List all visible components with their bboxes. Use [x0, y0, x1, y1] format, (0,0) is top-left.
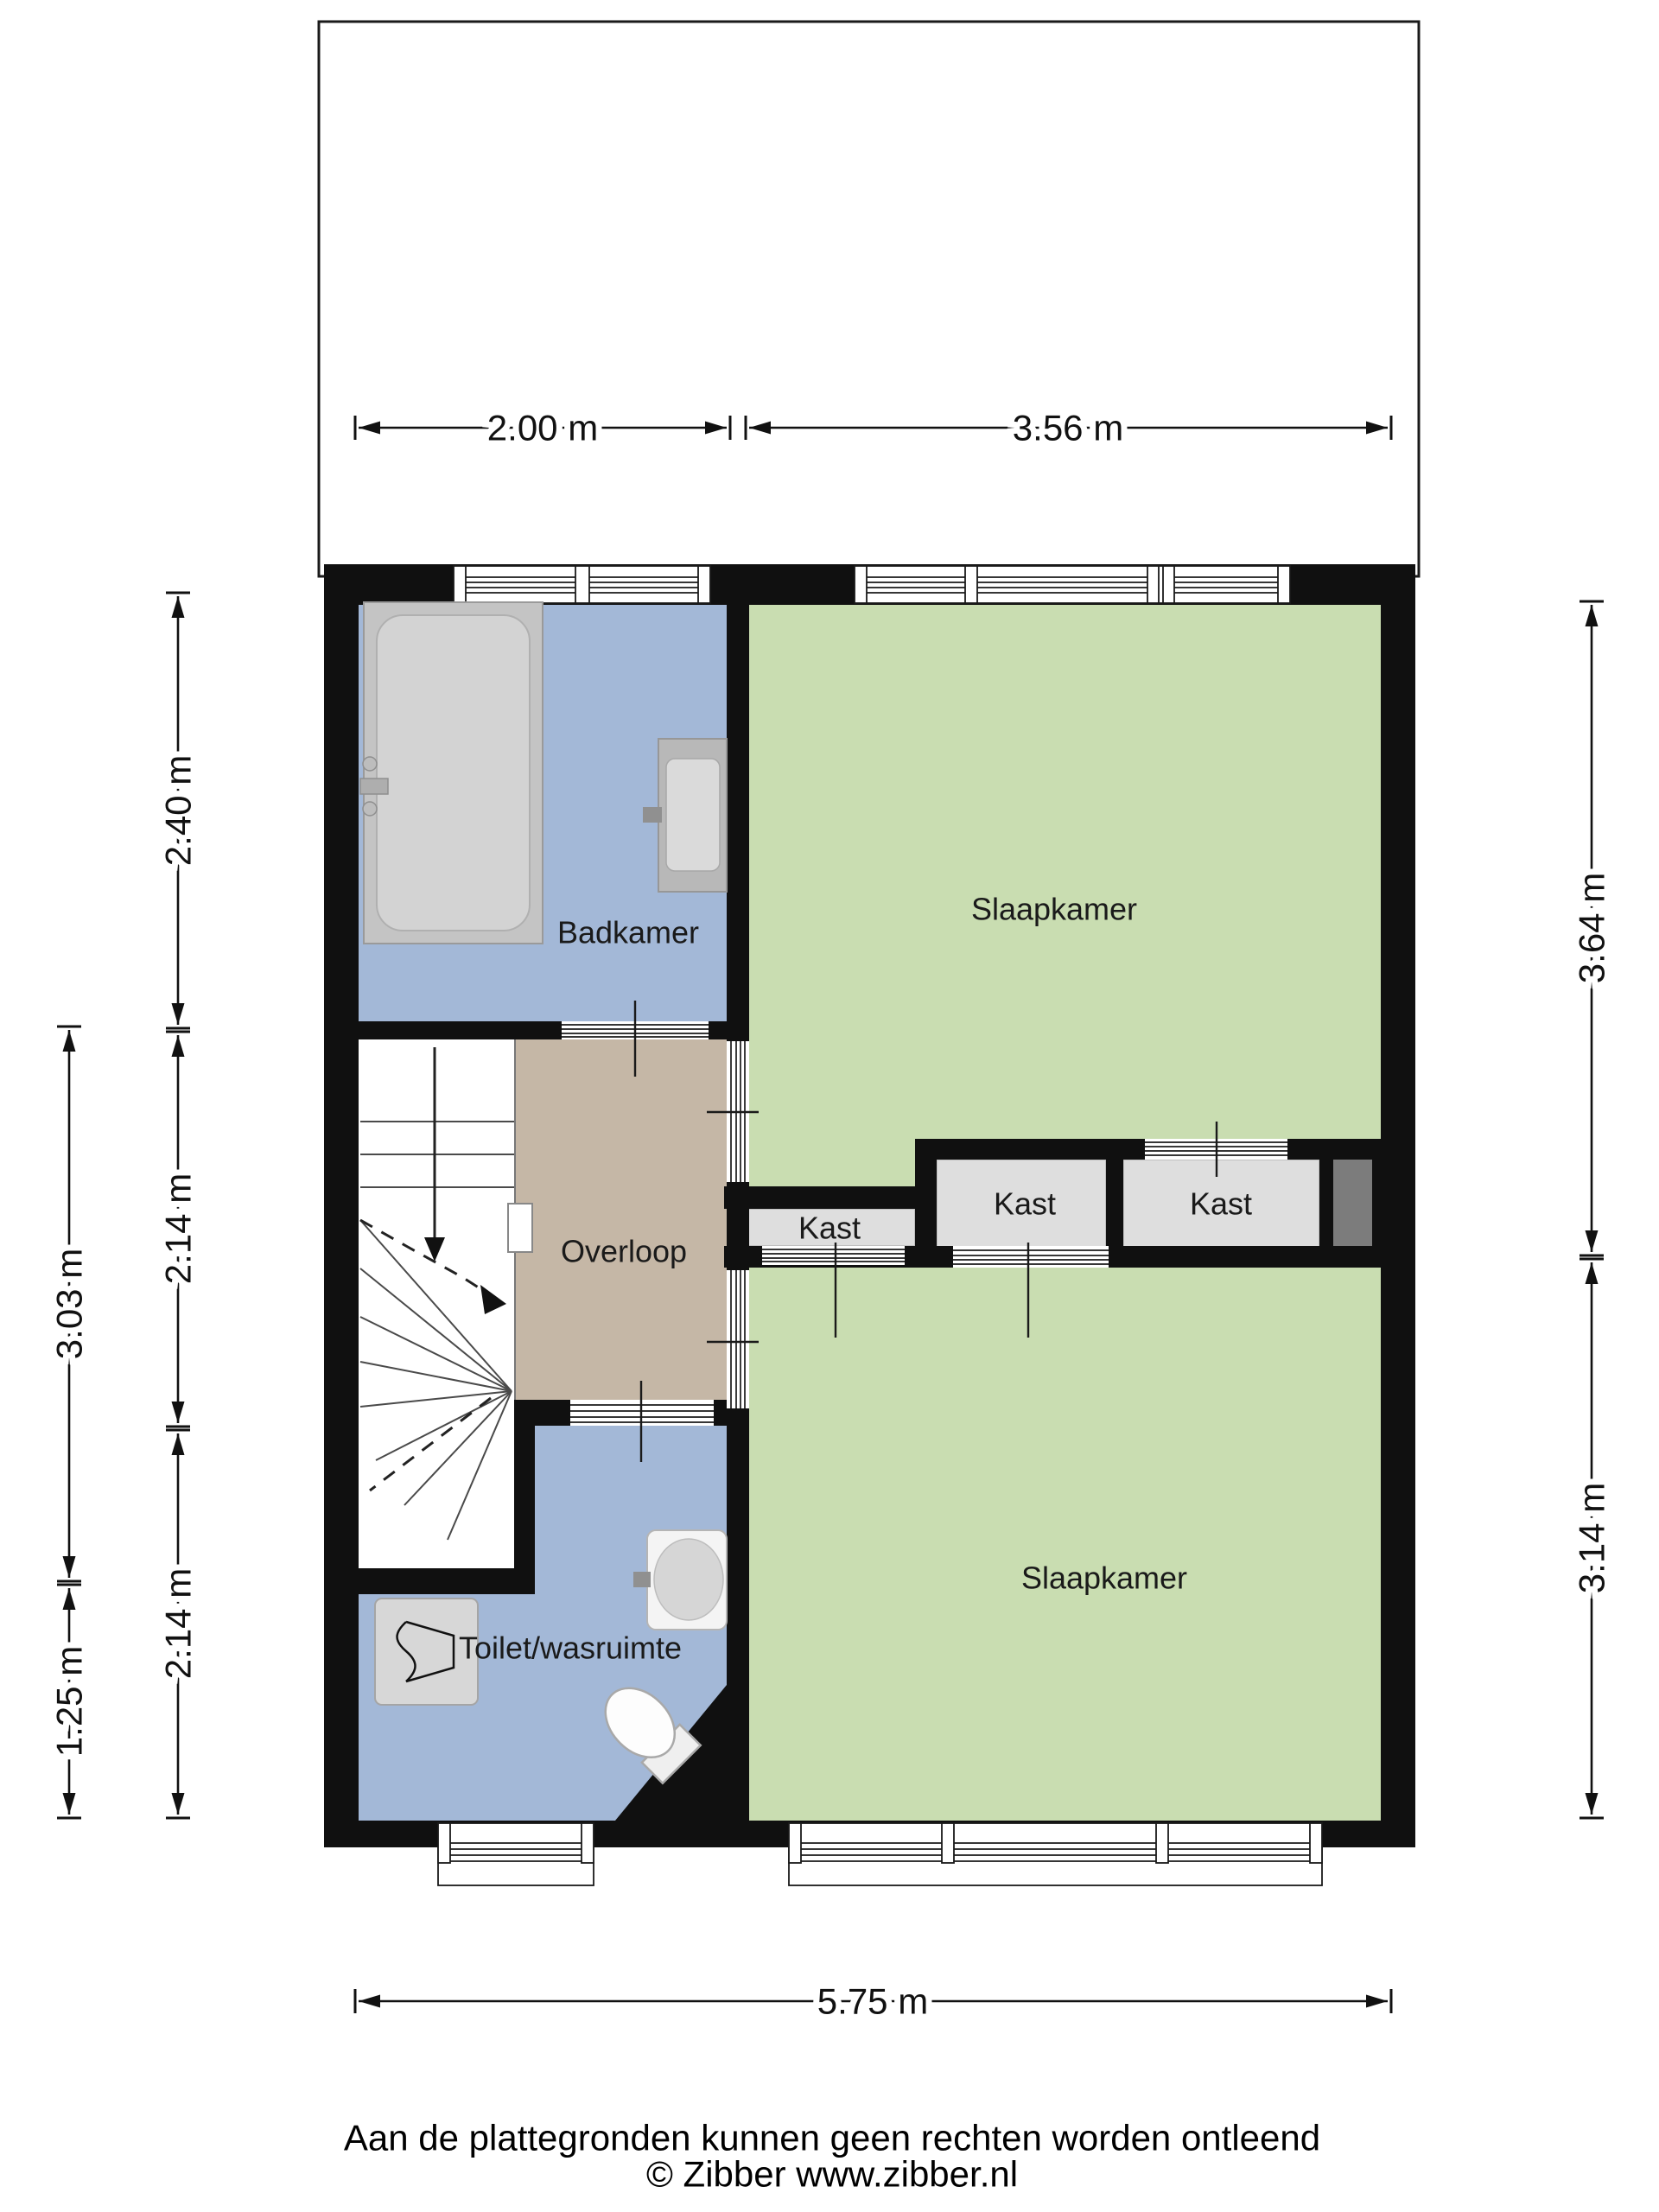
- label-kast-rechts: Kast: [1190, 1186, 1252, 1222]
- closet-niche: [1333, 1160, 1372, 1247]
- dimension-left-overloop: 2.14 m: [158, 1035, 199, 1423]
- label-slaapkamer-boven: Slaapkamer: [971, 892, 1137, 927]
- svg-text:3.03 m: 3.03 m: [49, 1249, 90, 1359]
- room-slaapkamer-boven-floor: [749, 605, 1381, 1139]
- wall-divider: [727, 605, 749, 1821]
- garden-outline: [319, 22, 1419, 576]
- wall-stairs-right: [514, 1400, 535, 1594]
- svg-text:2.14 m: 2.14 m: [158, 1568, 199, 1679]
- dimension-label: 2.00 m: [487, 408, 598, 448]
- sink-tap: [643, 807, 662, 823]
- label-badkamer: Badkamer: [557, 915, 699, 950]
- svg-text:3.14 m: 3.14 m: [1572, 1483, 1612, 1593]
- dimension-left-badkamer: 2.40 m: [158, 596, 199, 1025]
- label-overloop: Overloop: [561, 1234, 687, 1269]
- room-slaapkamer-beneden-floor: [749, 1268, 1381, 1821]
- room-slaapkamer-boven-notch: [749, 1139, 919, 1186]
- toilet-sink: [633, 1530, 727, 1630]
- wall-stairs-bottom: [359, 1568, 535, 1594]
- dimension-left-onder: 1.25 m: [49, 1588, 90, 1815]
- dimension-bottom-total: 5.75 m: [359, 1981, 1388, 2022]
- bathtub-faucet: [360, 779, 388, 794]
- dimension-right-slaapkamer-boven: 3.64 m: [1572, 605, 1612, 1252]
- footer-disclaimer: Aan de plattegronden kunnen geen rechten…: [344, 2118, 1320, 2158]
- label-toilet-wasruimte: Toilet/wasruimte: [459, 1630, 682, 1666]
- dimension-label: 3.56 m: [1013, 408, 1123, 448]
- room-overloop-floor: [516, 1039, 727, 1400]
- window-badkamer: [454, 566, 710, 603]
- svg-text:2.14 m: 2.14 m: [158, 1173, 199, 1284]
- window-toilet: [438, 1823, 594, 1885]
- sink-tap: [633, 1572, 651, 1587]
- dimension-left-stairwell: 3.03 m: [49, 1030, 90, 1578]
- dimension-left-toilet: 2.14 m: [158, 1433, 199, 1815]
- label-kast-klein: Kast: [798, 1211, 861, 1246]
- svg-text:3.64 m: 3.64 m: [1572, 873, 1612, 983]
- label-kast-midden: Kast: [994, 1186, 1056, 1222]
- svg-text:1.25 m: 1.25 m: [49, 1646, 90, 1757]
- stairs-newel-post: [508, 1204, 532, 1252]
- bathtub: [360, 602, 543, 944]
- dimension-right-slaapkamer-beneden: 3.14 m: [1572, 1262, 1612, 1815]
- label-slaapkamer-beneden: Slaapkamer: [1021, 1560, 1187, 1596]
- window-slaapkamer-beneden: [789, 1823, 1322, 1885]
- footer-copyright: © Zibber www.zibber.nl: [646, 2154, 1018, 2195]
- floorplan-page: 2.00 m 3.56 m: [0, 0, 1659, 2212]
- svg-text:5.75 m: 5.75 m: [817, 1981, 928, 2022]
- window-slaapkamer-boven: [855, 566, 1290, 603]
- svg-text:2.40 m: 2.40 m: [158, 755, 199, 866]
- floorplan-canvas: 2.00 m 3.56 m: [0, 0, 1659, 2212]
- wall-kast-klein-top: [724, 1186, 937, 1209]
